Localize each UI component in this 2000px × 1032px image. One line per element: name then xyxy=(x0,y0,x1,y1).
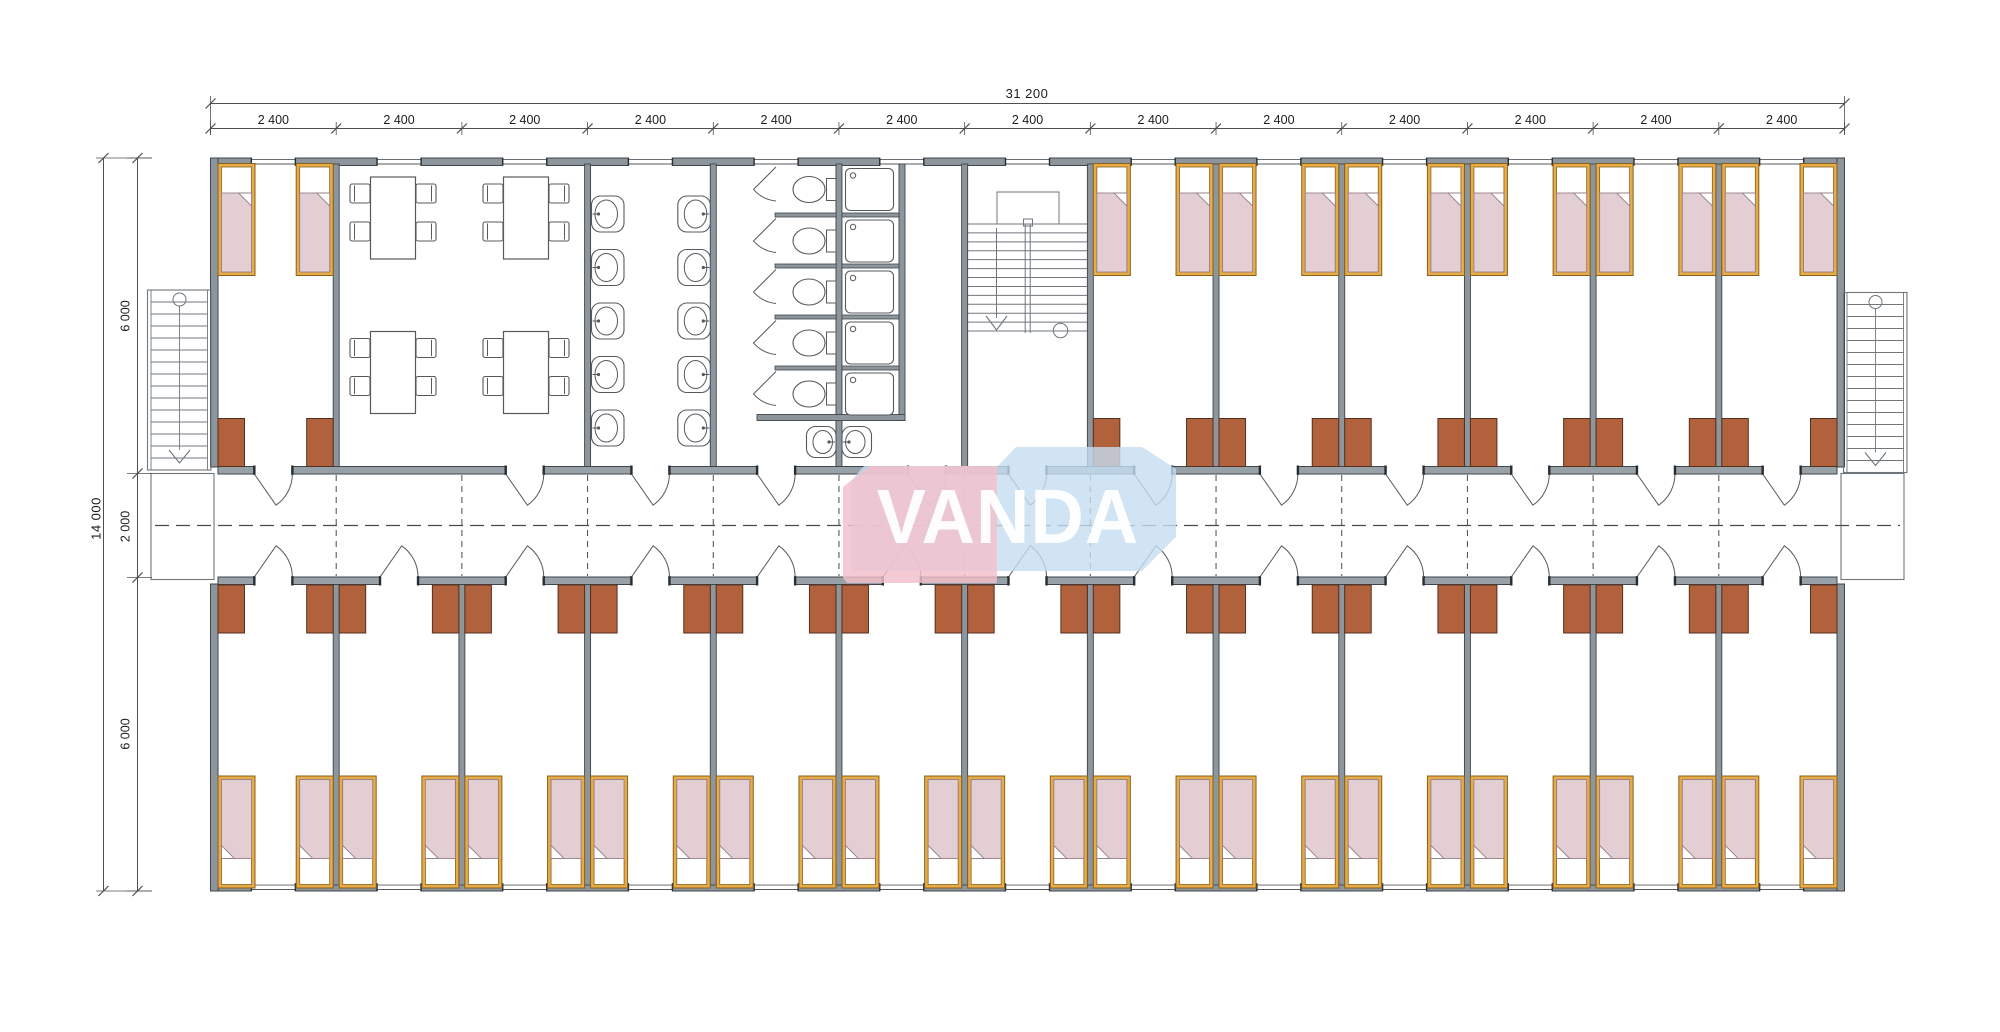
stall-door xyxy=(754,270,776,304)
corridor-wall xyxy=(921,577,1009,585)
partition-wall xyxy=(1590,164,1596,474)
desk xyxy=(1596,585,1623,633)
chair xyxy=(483,339,503,358)
bed-blanket xyxy=(1600,780,1630,859)
corridor-wall xyxy=(292,577,380,585)
door-jamb xyxy=(630,576,632,586)
partition-wall xyxy=(585,577,591,885)
door-jamb xyxy=(505,466,507,476)
bed-blanket xyxy=(1180,780,1210,859)
desk xyxy=(1564,419,1591,467)
door-jamb xyxy=(417,576,419,586)
corridor-wall xyxy=(1424,577,1512,585)
door-jamb xyxy=(668,576,670,586)
toilet-tank xyxy=(827,383,837,405)
dining-table xyxy=(504,332,549,414)
door-swing xyxy=(757,474,795,505)
desk xyxy=(684,585,711,633)
door-swing xyxy=(1260,546,1298,577)
door-swing xyxy=(1511,474,1549,505)
bed-blanket xyxy=(1180,193,1210,272)
door-jamb xyxy=(630,466,632,476)
dimension-module-label: 2 400 xyxy=(760,113,791,127)
bed-blanket xyxy=(802,780,832,859)
door-swing xyxy=(757,546,795,577)
door-jamb xyxy=(1548,466,1550,476)
desk xyxy=(1438,419,1465,467)
partition-wall xyxy=(1464,164,1470,474)
bed-blanket xyxy=(1682,193,1712,272)
door-jamb xyxy=(1384,466,1386,476)
bed-blanket xyxy=(1682,780,1712,859)
bed-blanket xyxy=(1348,780,1378,859)
outer-wall-top xyxy=(421,158,503,166)
sink-tap xyxy=(597,266,600,269)
sink-tap xyxy=(827,440,830,443)
sink-tap xyxy=(702,373,705,376)
door-swing xyxy=(1763,474,1801,505)
door-swing xyxy=(380,546,418,577)
partition-wall xyxy=(962,577,968,885)
corridor-wall xyxy=(1172,467,1260,475)
door-jamb xyxy=(668,466,670,476)
desk xyxy=(1093,419,1120,467)
door-jamb xyxy=(1007,576,1009,586)
entry-landing xyxy=(1841,474,1904,580)
door-jamb xyxy=(756,466,758,476)
stall-divider xyxy=(775,315,836,319)
toilet-bowl xyxy=(793,228,825,254)
partition-walls xyxy=(333,164,1722,885)
chair xyxy=(483,222,503,241)
door-jamb xyxy=(1171,466,1173,476)
desk xyxy=(1345,419,1372,467)
door-swing xyxy=(1637,474,1675,505)
shower-tray xyxy=(846,271,894,313)
door-jamb xyxy=(1636,576,1638,586)
bed-blanket xyxy=(300,193,330,272)
corridor-wall xyxy=(418,577,506,585)
sink-tap xyxy=(702,426,705,429)
stair-start-circle xyxy=(173,293,186,306)
bed-blanket xyxy=(594,780,624,859)
corridor-wall xyxy=(292,467,505,475)
desk xyxy=(1470,585,1497,633)
door-swing xyxy=(1511,546,1549,577)
corridor-wall xyxy=(218,467,254,475)
door-jamb xyxy=(1636,466,1638,476)
corridor-wall xyxy=(1549,577,1637,585)
bed-blanket xyxy=(222,780,252,859)
desk xyxy=(307,585,334,633)
dining-room xyxy=(350,177,569,414)
door-swing xyxy=(883,546,921,577)
door-jamb xyxy=(1171,576,1173,586)
door-swing xyxy=(1386,546,1424,577)
door-jamb xyxy=(1259,466,1261,476)
desk xyxy=(307,419,334,467)
stall-divider xyxy=(842,213,899,217)
corridor-wall xyxy=(544,577,632,585)
door-swing xyxy=(631,474,669,505)
bed-blanket xyxy=(677,780,707,859)
shower-tray xyxy=(846,169,894,211)
door-swing xyxy=(1386,474,1424,505)
toilet-tank xyxy=(827,332,837,354)
toilet-bowl xyxy=(793,279,825,305)
door-jamb xyxy=(1674,576,1676,586)
partition-wall xyxy=(1716,164,1722,474)
shower-tray xyxy=(846,373,894,415)
dimension-module-label: 2 400 xyxy=(509,113,540,127)
chair xyxy=(416,377,436,396)
bed-blanket xyxy=(1474,193,1504,272)
desk xyxy=(716,585,743,633)
bed-blanket xyxy=(845,780,875,859)
door-swing xyxy=(1763,546,1801,577)
dimension-module-label: 2 400 xyxy=(886,113,917,127)
door-swing xyxy=(1637,546,1675,577)
sink-tap xyxy=(597,373,600,376)
door-jamb xyxy=(253,466,255,476)
partition-wall xyxy=(1087,164,1093,474)
stall-divider xyxy=(842,315,899,319)
stall-divider xyxy=(775,264,836,268)
toilet-tank xyxy=(827,179,837,201)
chair xyxy=(549,184,569,203)
dimension-module-label: 2 400 xyxy=(1012,113,1043,127)
outer-wall-left xyxy=(211,584,219,891)
stall-divider xyxy=(842,264,899,268)
desk xyxy=(1722,585,1749,633)
door-swing xyxy=(254,546,292,577)
sink-tap xyxy=(847,440,850,443)
door-jamb xyxy=(1259,576,1261,586)
bed-blanket xyxy=(222,193,252,272)
dining-table xyxy=(371,332,416,414)
door-jamb xyxy=(1799,576,1801,586)
bed-blanket xyxy=(1305,193,1335,272)
dimension-segment-label: 2 000 xyxy=(119,511,133,542)
outer-wall-right xyxy=(1837,584,1845,891)
chair xyxy=(350,184,370,203)
door-jamb xyxy=(379,576,381,586)
bed-blanket xyxy=(1431,780,1461,859)
desk xyxy=(218,419,245,467)
corridor-wall xyxy=(544,467,632,475)
toilet-stalls xyxy=(754,167,899,415)
chair xyxy=(350,339,370,358)
desk xyxy=(591,585,618,633)
desk xyxy=(1811,419,1838,467)
desk xyxy=(339,585,366,633)
stair-start-circle xyxy=(1869,296,1882,309)
toilet-tank xyxy=(827,281,837,303)
desk xyxy=(1219,419,1246,467)
door-jamb xyxy=(1761,576,1763,586)
door-swing xyxy=(506,474,544,505)
corridor-wall xyxy=(1675,467,1763,475)
chair xyxy=(549,339,569,358)
dimension-module-label: 2 400 xyxy=(1766,113,1797,127)
dimension-segment-label: 6 000 xyxy=(119,718,133,749)
bed-blanket xyxy=(343,780,373,859)
corridor-wall xyxy=(795,467,908,475)
bed-blanket xyxy=(1223,780,1253,859)
dimension-module-label: 2 400 xyxy=(1263,113,1294,127)
stair-down-arrow xyxy=(986,316,1007,330)
door-swing xyxy=(631,546,669,577)
bed-blanket xyxy=(971,780,1001,859)
corridor-wall xyxy=(946,467,1009,475)
stall-divider xyxy=(775,213,836,217)
door-jamb xyxy=(291,466,293,476)
door-swing xyxy=(908,474,946,505)
bed-blanket xyxy=(1804,780,1834,859)
desk xyxy=(432,585,459,633)
desk xyxy=(1811,585,1838,633)
door-jamb xyxy=(756,576,758,586)
desk xyxy=(1312,419,1339,467)
partition-wall xyxy=(1213,164,1219,474)
dimension-module-label: 2 400 xyxy=(635,113,666,127)
door-jamb xyxy=(1674,466,1676,476)
desk xyxy=(1438,585,1465,633)
desk xyxy=(1093,585,1120,633)
corridor-wall xyxy=(218,577,254,585)
door-jamb xyxy=(1007,466,1009,476)
desk xyxy=(968,585,995,633)
desk xyxy=(1564,585,1591,633)
door-swing xyxy=(1009,546,1047,577)
stall-divider xyxy=(775,366,836,370)
door-jamb xyxy=(1045,466,1047,476)
bed-blanket xyxy=(1223,193,1253,272)
door-jamb xyxy=(1133,576,1135,586)
corridor-wall xyxy=(1801,577,1837,585)
bed-blanket xyxy=(1725,193,1755,272)
desk xyxy=(1722,419,1749,467)
chair xyxy=(483,377,503,396)
dimension-segment-label: 6 000 xyxy=(119,300,133,331)
toilet-tank xyxy=(827,230,837,252)
door-jamb xyxy=(1297,576,1299,586)
toilet-bowl xyxy=(793,381,825,407)
bed-blanket xyxy=(1557,780,1587,859)
bed-blanket xyxy=(1097,193,1127,272)
door-jamb xyxy=(945,466,947,476)
corridor-wall xyxy=(1549,467,1637,475)
sink-tap xyxy=(702,212,705,215)
corridor-wall xyxy=(1298,577,1386,585)
corridor-wall xyxy=(669,577,757,585)
stall-door xyxy=(754,372,776,406)
dining-table xyxy=(504,177,549,259)
sink-tap xyxy=(597,426,600,429)
bed-blanket xyxy=(1804,193,1834,272)
bed-blanket xyxy=(468,780,498,859)
partition-wall xyxy=(962,164,968,474)
bed-blanket xyxy=(720,780,750,859)
desk xyxy=(935,585,962,633)
chair xyxy=(549,222,569,241)
chair xyxy=(350,222,370,241)
door-jamb xyxy=(920,576,922,586)
dimension-total-height: 14 000 xyxy=(89,479,104,559)
sink-tap xyxy=(702,266,705,269)
floor-plan-drawing: 2 4002 4002 4002 4002 4002 4002 4002 400… xyxy=(0,0,2000,1032)
corridor-wall xyxy=(1801,467,1837,475)
dimension-module-label: 2 400 xyxy=(383,113,414,127)
desk xyxy=(1689,585,1716,633)
door-swing xyxy=(1260,474,1298,505)
bed-blanket xyxy=(928,780,958,859)
dimension-module-label: 2 400 xyxy=(1515,113,1546,127)
desk xyxy=(1187,585,1214,633)
door-jamb xyxy=(1761,466,1763,476)
door-jamb xyxy=(1297,466,1299,476)
entry-landing xyxy=(151,474,214,580)
sink-tap xyxy=(597,212,600,215)
door-jamb xyxy=(1384,576,1386,586)
partition-wall xyxy=(1716,577,1722,885)
partition-wall xyxy=(710,577,716,885)
corridor-axis xyxy=(155,475,1900,576)
desk xyxy=(1689,419,1716,467)
shower-tray xyxy=(846,322,894,364)
door-jamb xyxy=(907,466,909,476)
door-jamb xyxy=(794,576,796,586)
bed-blanket xyxy=(1431,193,1461,272)
toilet-bowl xyxy=(793,177,825,203)
partition-wall xyxy=(585,164,591,474)
partition-wall xyxy=(1464,577,1470,885)
corridor-wall xyxy=(795,577,883,585)
partition-wall xyxy=(1590,577,1596,885)
desk xyxy=(1312,585,1339,633)
bed-blanket xyxy=(1097,780,1127,859)
door-swing xyxy=(1134,474,1172,505)
desk xyxy=(1345,585,1372,633)
stall-door xyxy=(754,219,776,253)
corridor-wall xyxy=(1047,467,1135,475)
door-swing xyxy=(254,474,292,505)
bed-blanket xyxy=(425,780,455,859)
door-jamb xyxy=(1133,466,1135,476)
partition-wall xyxy=(1339,164,1345,474)
door-jamb xyxy=(1510,466,1512,476)
bed-blanket xyxy=(1725,780,1755,859)
stall-divider xyxy=(842,366,899,370)
door-jamb xyxy=(1510,576,1512,586)
partition-wall xyxy=(836,164,842,474)
desk xyxy=(1187,419,1214,467)
desk xyxy=(809,585,836,633)
entry-landings xyxy=(151,474,1904,580)
dimension-module-label: 2 400 xyxy=(1138,113,1169,127)
door-jamb xyxy=(253,576,255,586)
desk xyxy=(558,585,585,633)
shower-tray xyxy=(846,220,894,262)
sink-tap xyxy=(702,319,705,322)
desk xyxy=(1596,419,1623,467)
stall-door xyxy=(754,321,776,355)
corridor-wall xyxy=(669,467,757,475)
door-jamb xyxy=(1422,576,1424,586)
door-jamb xyxy=(794,466,796,476)
chair xyxy=(416,222,436,241)
stall-door xyxy=(754,167,776,201)
desk xyxy=(1061,585,1088,633)
partition-wall xyxy=(836,577,842,885)
door-jamb xyxy=(543,576,545,586)
door-swing xyxy=(506,546,544,577)
door-jamb xyxy=(1799,466,1801,476)
dimension-total-width: 31 200 xyxy=(210,86,1844,101)
chair xyxy=(350,377,370,396)
corridor-wall xyxy=(1047,577,1135,585)
floor-plan-canvas: 2 4002 4002 4002 4002 4002 4002 4002 400… xyxy=(0,0,2000,1032)
bed-blanket xyxy=(1348,193,1378,272)
bed-blanket xyxy=(1054,780,1084,859)
door-swing xyxy=(1134,546,1172,577)
desk xyxy=(1470,419,1497,467)
chair xyxy=(416,339,436,358)
dimension-module-label: 2 400 xyxy=(1389,113,1420,127)
corridor-wall xyxy=(1424,467,1512,475)
door-jamb xyxy=(505,576,507,586)
outer-wall-left xyxy=(211,158,219,467)
corridor-wall xyxy=(1172,577,1260,585)
bed-blanket xyxy=(551,780,581,859)
stairwell xyxy=(968,192,1087,338)
bed-blanket xyxy=(1600,193,1630,272)
bed-blanket xyxy=(300,780,330,859)
door-jamb xyxy=(543,466,545,476)
chair xyxy=(416,184,436,203)
door-jamb xyxy=(1422,466,1424,476)
desk xyxy=(1219,585,1246,633)
partition-wall xyxy=(710,164,716,474)
bed-blanket xyxy=(1557,193,1587,272)
door-jamb xyxy=(1548,576,1550,586)
bed-blanket xyxy=(1305,780,1335,859)
bed-blanket xyxy=(1474,780,1504,859)
partition-wall xyxy=(1339,577,1345,885)
dimension-module-label: 2 400 xyxy=(1640,113,1671,127)
chair xyxy=(549,377,569,396)
desk xyxy=(842,585,869,633)
partition-wall xyxy=(459,577,465,885)
external-stair-left xyxy=(148,290,212,470)
desk xyxy=(465,585,492,633)
partition-wall xyxy=(333,164,339,474)
corridor-wall xyxy=(1298,467,1386,475)
toilet-bowl xyxy=(793,330,825,356)
door-jamb xyxy=(1045,576,1047,586)
door-jamb xyxy=(291,576,293,586)
partition-wall xyxy=(1213,577,1219,885)
door-jamb xyxy=(882,576,884,586)
partition-wall xyxy=(899,164,905,421)
sink-tap xyxy=(597,319,600,322)
corridor-wall xyxy=(1675,577,1763,585)
external-stair-right xyxy=(1844,293,1908,473)
dimension-module-label: 2 400 xyxy=(258,113,289,127)
desk xyxy=(218,585,245,633)
stair-down-arrow xyxy=(169,450,190,463)
partition-wall xyxy=(1087,577,1093,885)
